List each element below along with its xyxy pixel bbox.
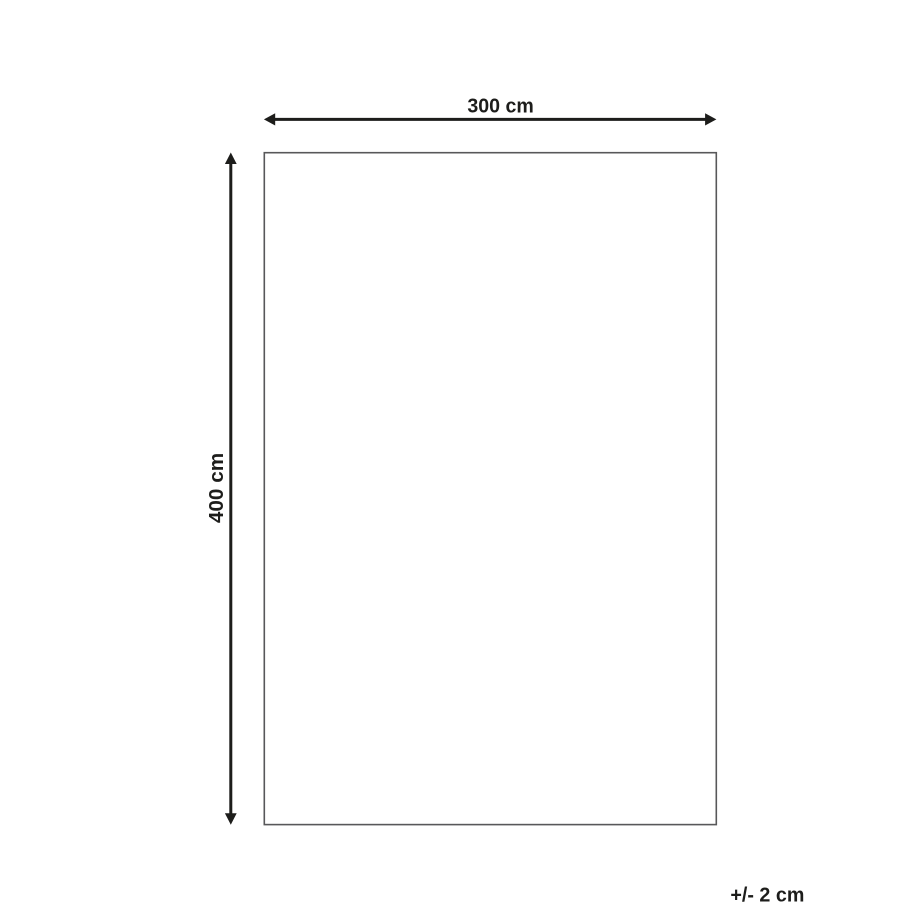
- svg-text:+/- 2 cm: +/- 2 cm: [730, 883, 804, 906]
- svg-text:300 cm: 300 cm: [467, 94, 533, 117]
- svg-text:400 cm: 400 cm: [205, 453, 228, 523]
